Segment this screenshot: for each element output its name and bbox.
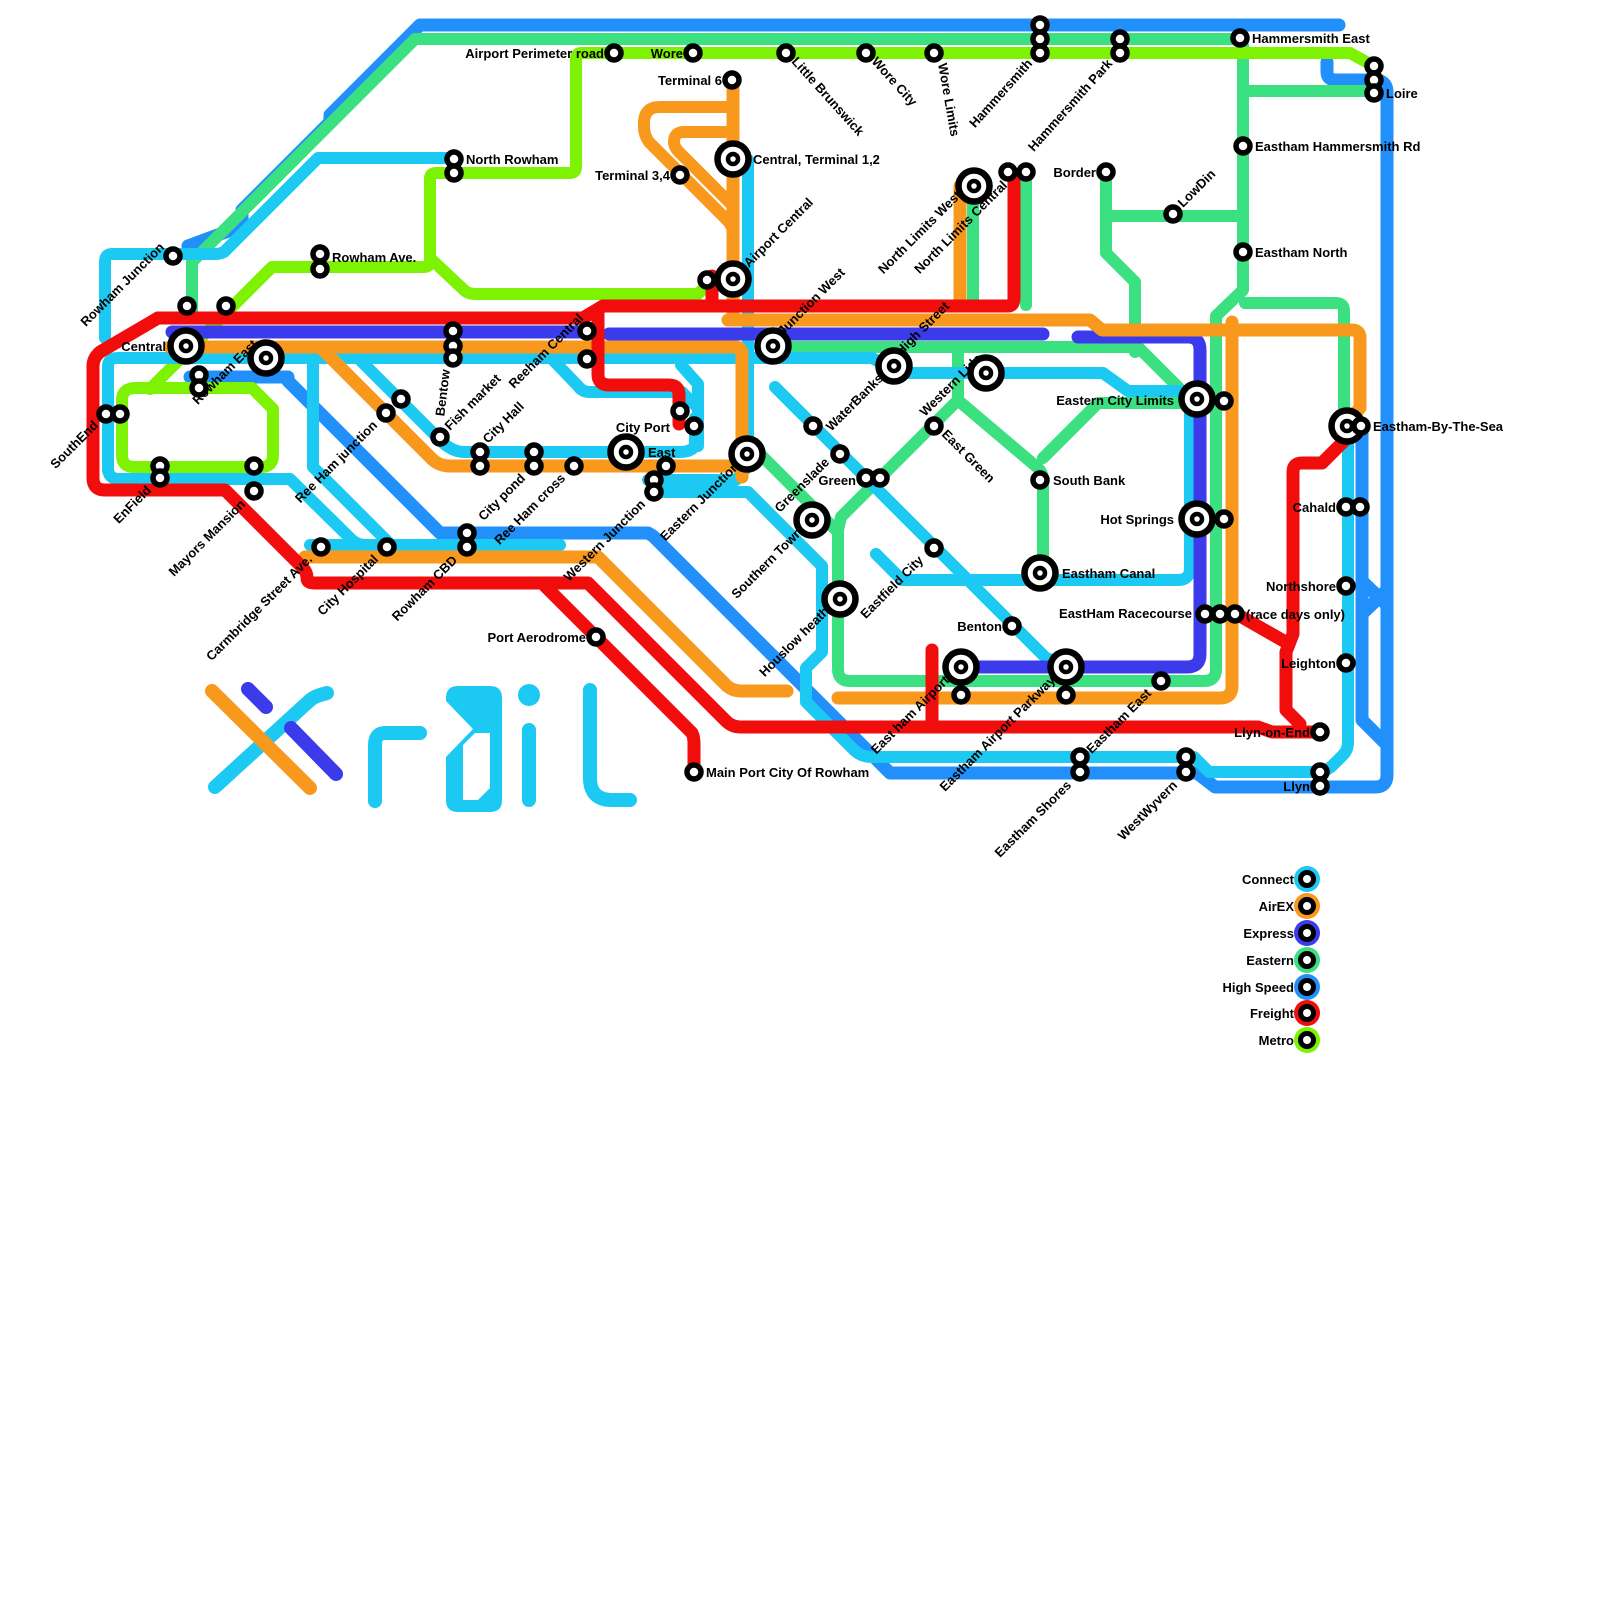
svg-text:Main Port City Of Rowham: Main Port City Of Rowham [706,765,869,780]
svg-text:Express: Express [1243,926,1294,941]
svg-text:EastHam Racecourse: EastHam Racecourse [1059,606,1192,621]
svg-text:AirEX: AirEX [1259,899,1295,914]
svg-text:Loire: Loire [1386,86,1418,101]
svg-text:Eastham North: Eastham North [1255,245,1348,260]
svg-text:Eastham Hammersmith Rd: Eastham Hammersmith Rd [1255,139,1420,154]
svg-text:South Bank: South Bank [1053,473,1126,488]
svg-text:Border: Border [1053,165,1096,180]
svg-text:Central, Terminal 1,2: Central, Terminal 1,2 [753,152,880,167]
svg-text:Eastham Canal: Eastham Canal [1062,566,1155,581]
svg-text:Eastern City Limits: Eastern City Limits [1056,393,1174,408]
svg-text:Airport Perimeter road: Airport Perimeter road [465,46,604,61]
svg-text:Terminal 6: Terminal 6 [658,73,722,88]
svg-text:Central: Central [121,339,166,354]
svg-text:East: East [648,445,676,460]
svg-text:High Speed: High Speed [1222,980,1294,995]
svg-text:Cahald: Cahald [1293,500,1336,515]
svg-text:Metro: Metro [1259,1033,1294,1048]
svg-text:Leighton: Leighton [1281,656,1336,671]
svg-text:Hammersmith East: Hammersmith East [1252,31,1370,46]
svg-text:Northshore: Northshore [1266,579,1336,594]
svg-text:Eastham-By-The-Sea: Eastham-By-The-Sea [1373,419,1504,434]
svg-text:Freight: Freight [1250,1006,1295,1021]
svg-text:Wore: Wore [651,46,683,61]
svg-text:Benton: Benton [957,619,1002,634]
svg-text:Port Aerodrome: Port Aerodrome [488,630,586,645]
svg-text:Llyn: Llyn [1283,779,1310,794]
svg-text:(race days only): (race days only) [1246,607,1345,622]
svg-text:Llyn-on-End: Llyn-on-End [1234,725,1310,740]
svg-text:Rowham Ave.: Rowham Ave. [332,250,416,265]
svg-text:Terminal 3,4: Terminal 3,4 [595,168,671,183]
svg-text:Green: Green [818,473,856,488]
svg-text:Connect: Connect [1242,872,1295,887]
svg-text:Hot Springs: Hot Springs [1100,512,1174,527]
svg-text:North Rowham: North Rowham [466,152,558,167]
svg-text:City Port: City Port [616,420,671,435]
svg-text:Eastern: Eastern [1246,953,1294,968]
